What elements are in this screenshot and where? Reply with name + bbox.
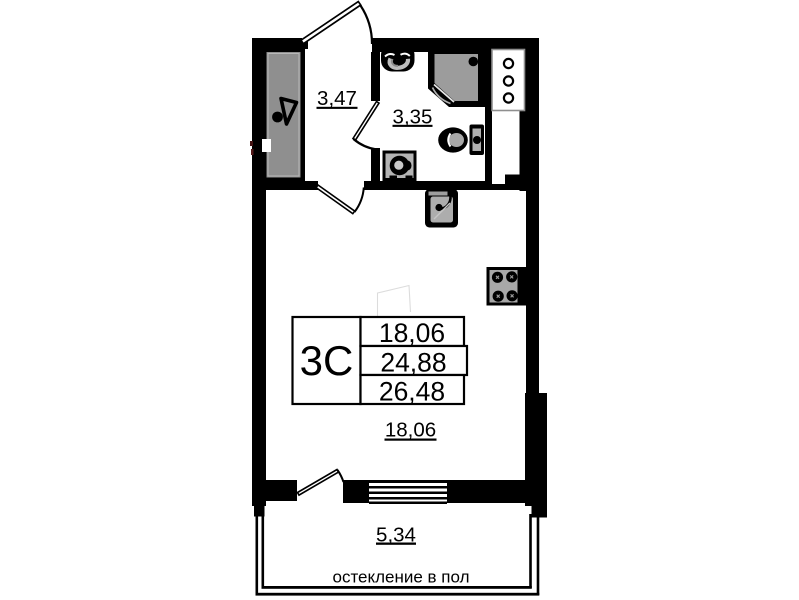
- svg-text:3C: 3C: [300, 337, 354, 384]
- svg-text:3,47: 3,47: [317, 87, 357, 110]
- svg-text:24,88: 24,88: [380, 348, 446, 378]
- svg-text:26,48: 26,48: [379, 377, 445, 407]
- svg-text:остекление в пол: остекление в пол: [332, 568, 469, 587]
- svg-text:18,06: 18,06: [385, 419, 436, 442]
- svg-text:18,06: 18,06: [379, 318, 445, 348]
